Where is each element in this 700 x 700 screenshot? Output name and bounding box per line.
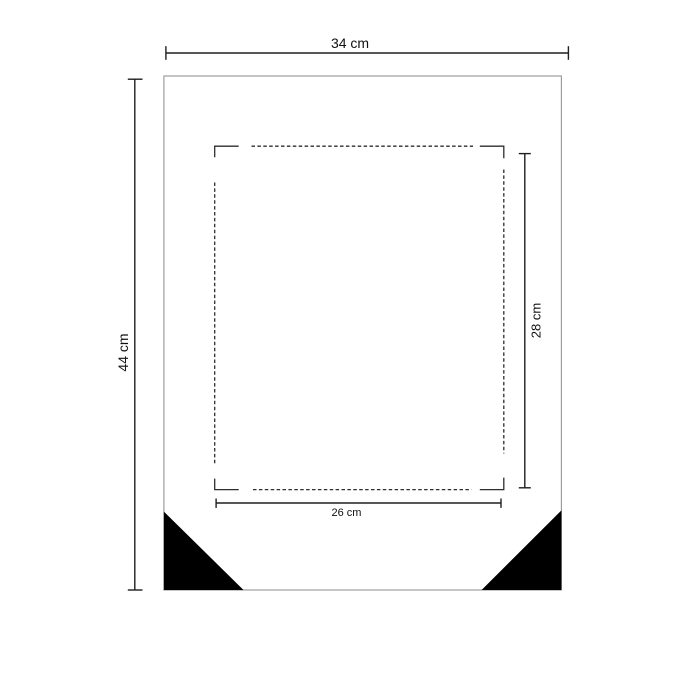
svg-text:34 cm: 34 cm [331, 35, 369, 51]
svg-text:26 cm: 26 cm [332, 507, 362, 519]
svg-text:28 cm: 28 cm [529, 303, 544, 338]
svg-text:44 cm: 44 cm [115, 333, 131, 371]
